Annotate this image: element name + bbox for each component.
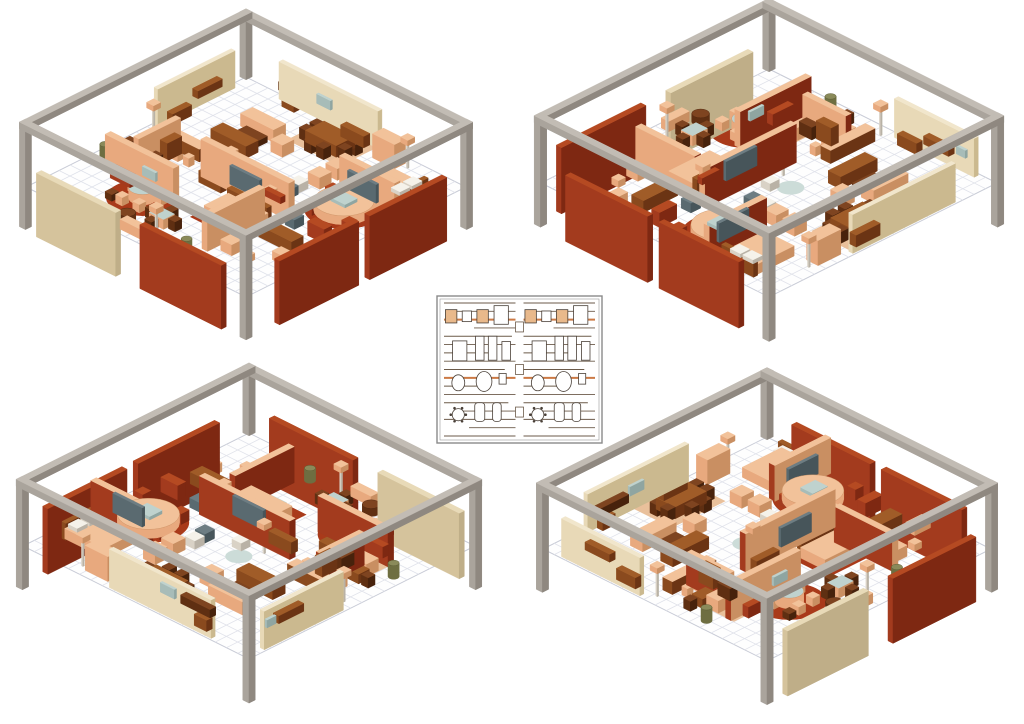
round-rug (225, 550, 252, 564)
furniture-block (873, 100, 888, 113)
round-rug (777, 181, 804, 195)
plan-furniture-glyph (476, 371, 492, 391)
plan-chair-dot (529, 413, 532, 416)
round-furniture (701, 604, 712, 623)
plan-furniture-glyph (494, 306, 508, 325)
plan-furniture-glyph (445, 310, 456, 323)
plan-center-connector (516, 322, 524, 332)
floor-plan-thumbnail (437, 296, 602, 443)
plan-furniture-glyph (462, 311, 471, 322)
frame-member (461, 119, 473, 230)
plan-furniture-glyph (502, 342, 511, 361)
plan-furniture-glyph (477, 310, 488, 323)
plan-furniture-glyph (453, 341, 467, 361)
plan-chair-dot (540, 420, 543, 423)
iso-view-top-right (534, 0, 1004, 342)
plan-furniture-glyph (531, 375, 544, 391)
plan-furniture-glyph (568, 336, 577, 360)
plan-furniture-glyph (574, 306, 588, 325)
plan-furniture-glyph (493, 403, 502, 422)
plan-furniture-glyph (499, 373, 506, 384)
plan-furniture-glyph (475, 403, 485, 422)
plan-furniture-glyph (581, 342, 590, 361)
furniture-block (810, 141, 821, 156)
furniture-block (168, 215, 181, 232)
plan-furniture-glyph (554, 403, 564, 422)
plan-center-connector (516, 365, 524, 375)
round-furniture (304, 465, 315, 483)
plan-chair-dot (461, 420, 464, 423)
frame-member (19, 119, 31, 230)
iso-view-top-left (19, 9, 472, 340)
plan-furniture-glyph (475, 336, 484, 360)
plan-furniture-glyph (555, 336, 564, 360)
plan-furniture-glyph (452, 409, 464, 421)
plan-chair-dot (540, 407, 543, 410)
frame-member (985, 480, 997, 593)
plan-chair-dot (533, 420, 536, 423)
plan-chair-dot (453, 407, 456, 410)
plan-chair-dot (465, 413, 468, 416)
plan-furniture-glyph (556, 371, 572, 391)
plan-chair-dot (453, 420, 456, 423)
plan-furniture-glyph (572, 403, 581, 422)
frame-member (16, 476, 28, 590)
plan-furniture-glyph (525, 310, 536, 323)
frame-member (761, 592, 773, 705)
plan-chair-dot (544, 413, 547, 416)
plan-chair-dot (449, 413, 452, 416)
plan-furniture-glyph (532, 409, 544, 421)
furniture-block (721, 432, 735, 445)
furniture-block (183, 153, 194, 167)
iso-view-bottom-right (536, 368, 997, 705)
frame-member (991, 113, 1004, 228)
plan-furniture-glyph (488, 336, 497, 360)
furniture-showroom-sheet (0, 0, 1024, 724)
furniture-block (361, 571, 375, 588)
frame-member (763, 227, 776, 342)
furniture-block (684, 595, 697, 612)
showroom-visualization-canvas (0, 0, 1024, 724)
furniture-block (806, 592, 819, 607)
plan-chair-dot (533, 407, 536, 410)
plan-furniture-glyph (556, 310, 567, 323)
frame-member (469, 476, 481, 590)
frame-member (534, 113, 547, 228)
plan-furniture-glyph (579, 373, 586, 384)
round-furniture (388, 560, 399, 579)
plan-chair-dot (461, 407, 464, 410)
plan-center-connector (516, 407, 524, 417)
frame-member (240, 229, 252, 340)
iso-view-bottom-left (16, 363, 482, 703)
frame-member (243, 590, 255, 704)
furniture-block (715, 116, 729, 131)
plan-furniture-glyph (542, 311, 551, 322)
frame-member (536, 480, 548, 593)
furniture-block (116, 191, 129, 206)
furniture-block (316, 142, 330, 160)
plan-furniture-glyph (452, 375, 465, 391)
plan-furniture-glyph (532, 341, 546, 361)
furniture-block (697, 131, 711, 148)
